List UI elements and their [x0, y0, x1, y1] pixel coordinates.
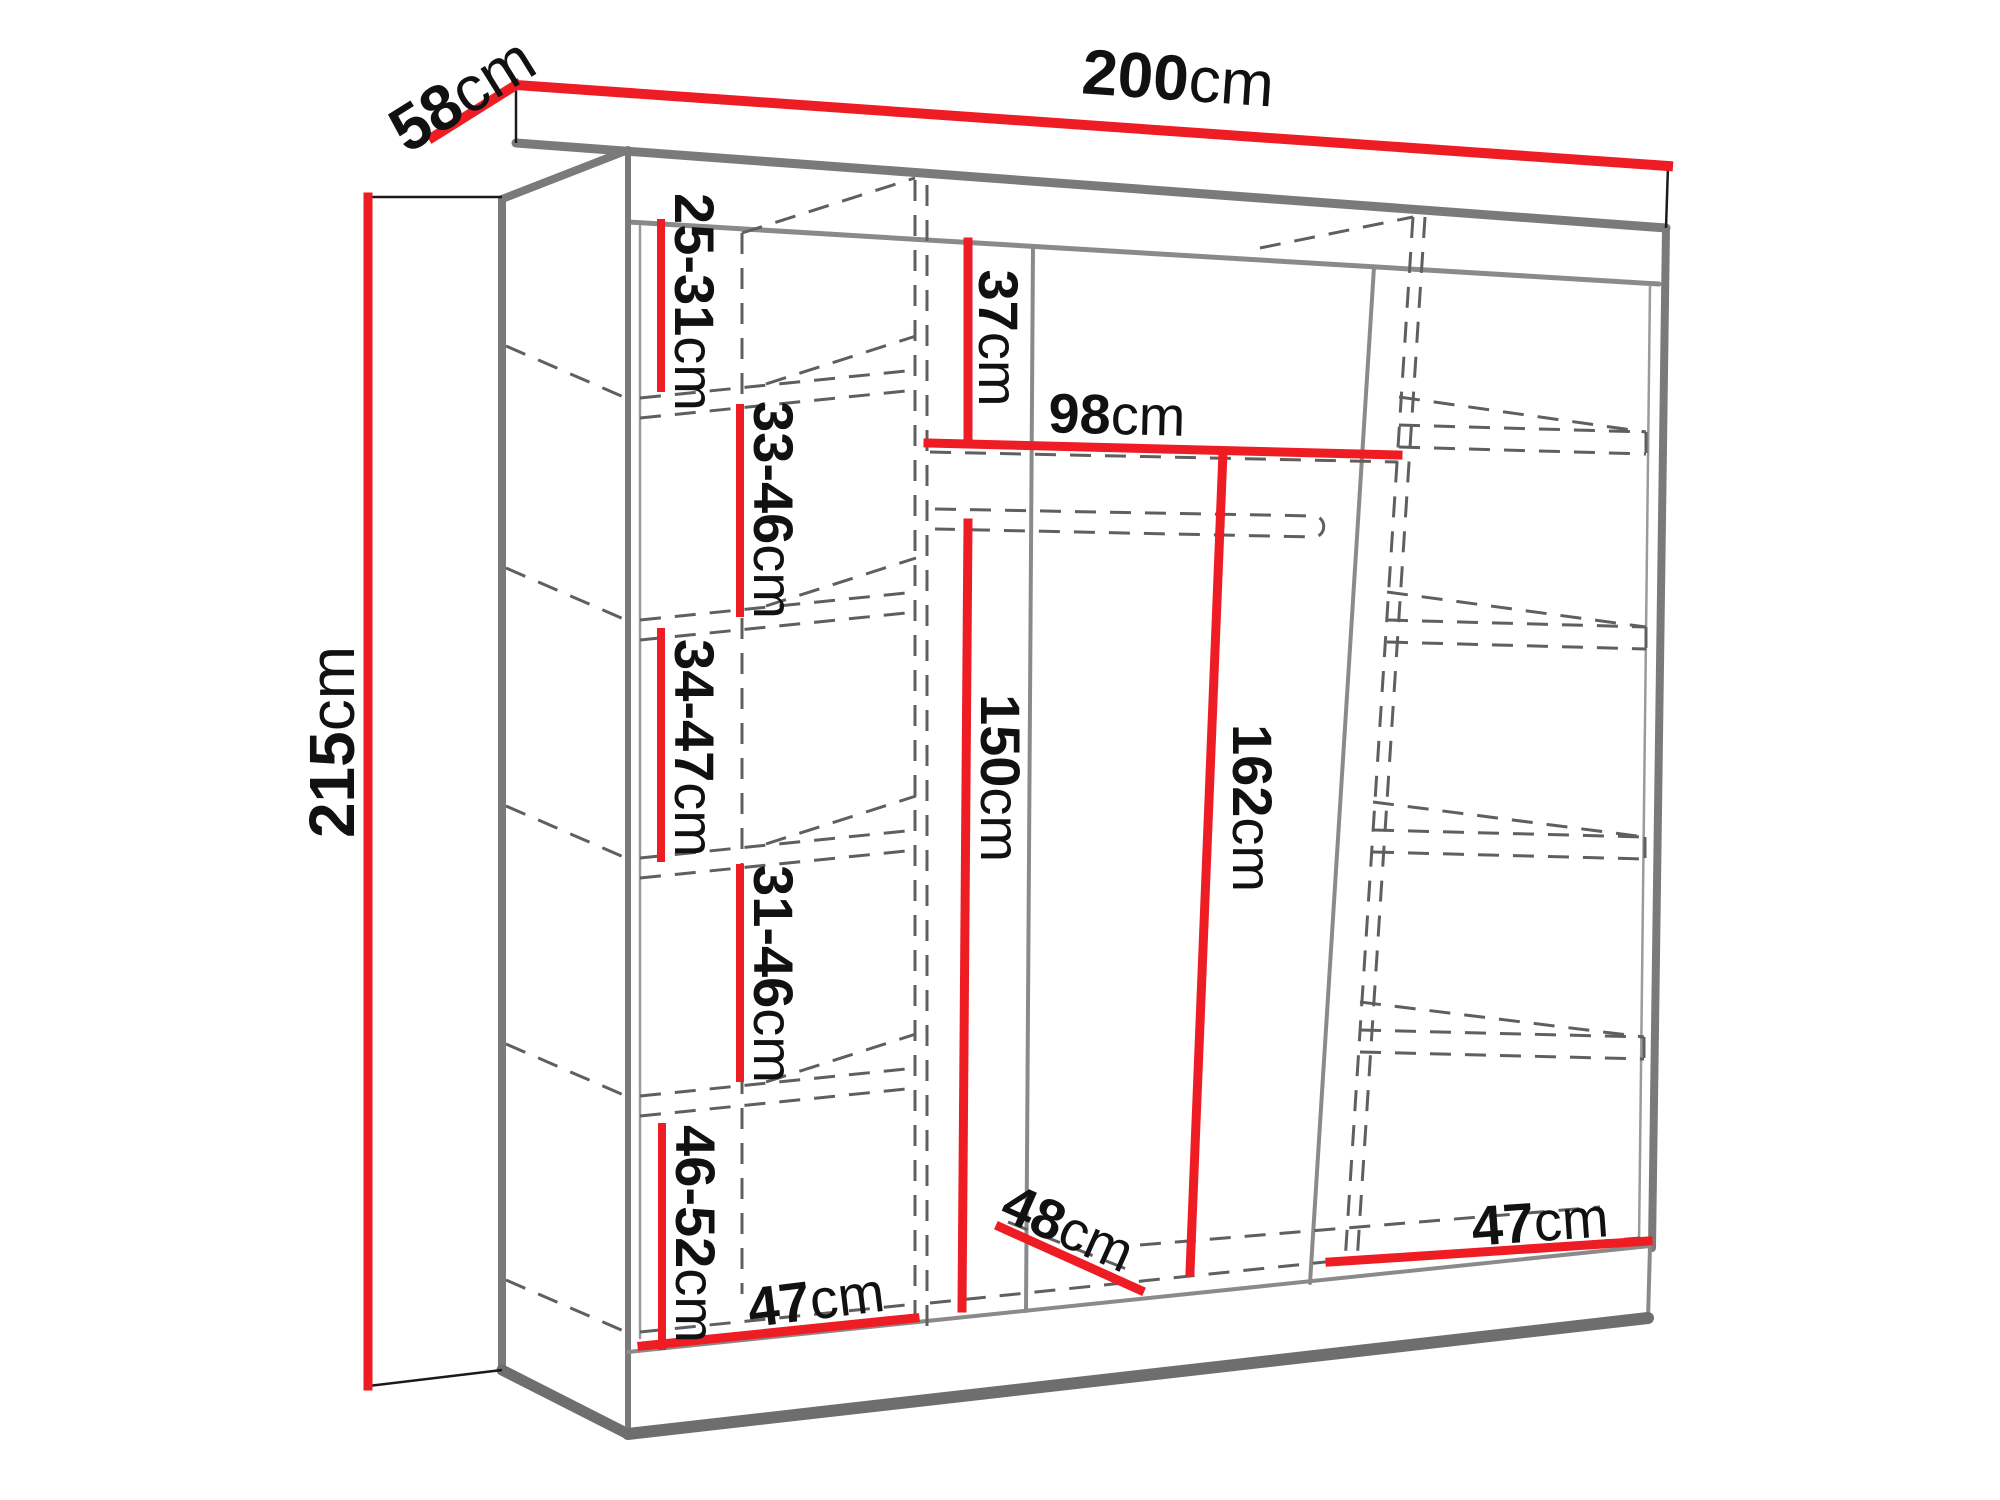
top-clearance-label: 37cm [967, 270, 1030, 407]
height-label: 215cm [296, 646, 368, 838]
left-gap-3-label: 34-47cm [663, 639, 726, 857]
middle-width-label: 98cm [1048, 381, 1187, 448]
left-gap-4-label: 31-46cm [742, 865, 805, 1083]
left-gap-1-label: 25-31cm [663, 193, 726, 411]
plinth-right-edge [1648, 1246, 1650, 1320]
width-label: 200cm [1080, 35, 1277, 120]
dim-hanging-height-line [962, 523, 968, 1308]
diagram-canvas: 200cm 58cm 215cm 25-31cm 33-46cm 34-47cm… [0, 0, 2000, 1500]
left-gap-5-label: 46-52cm [664, 1125, 727, 1343]
hanging-height-label: 150cm [969, 694, 1032, 862]
right-shelf-width-label: 47cm [1469, 1185, 1610, 1257]
right-height-label: 162cm [1221, 724, 1284, 892]
wardrobe-dimension-diagram: 200cm 58cm 215cm 25-31cm 33-46cm 34-47cm… [0, 0, 2000, 1500]
left-gap-2-label: 33-46cm [742, 401, 805, 619]
